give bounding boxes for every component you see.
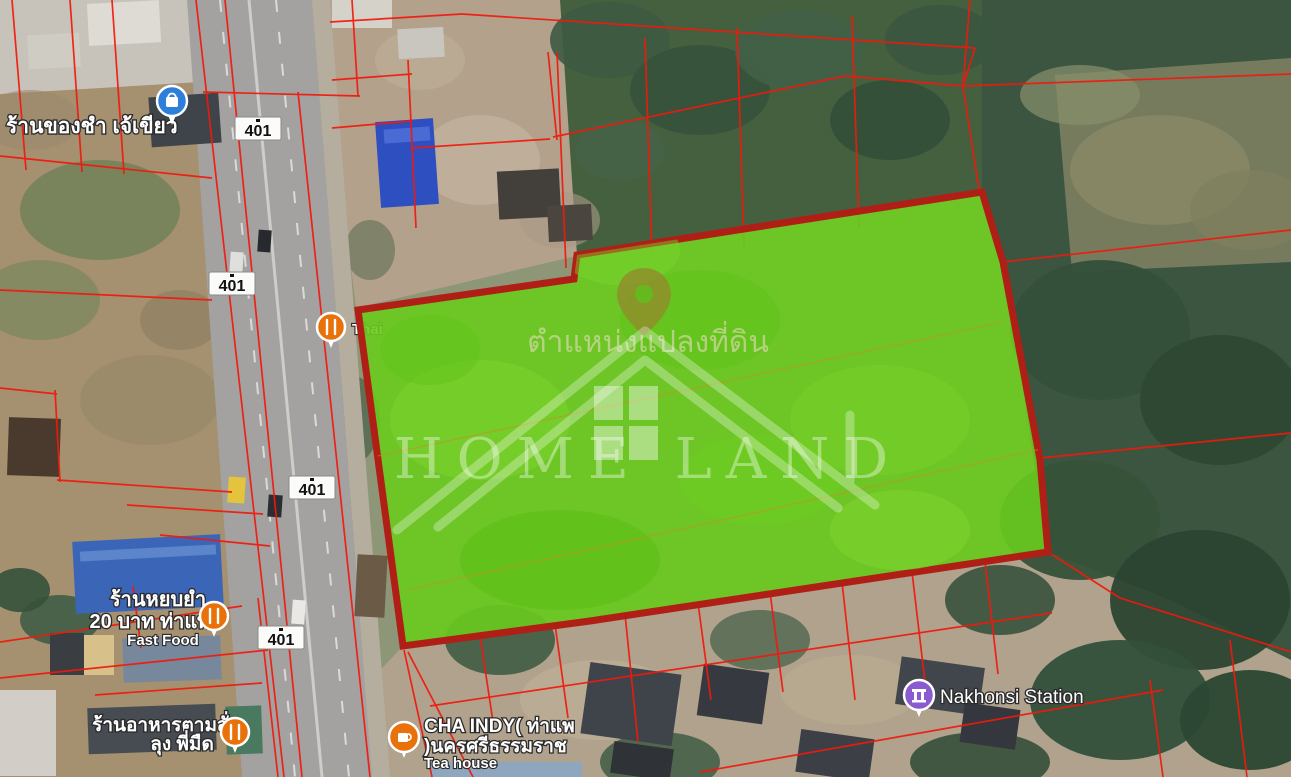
road-shield-401: 401 [289, 476, 335, 499]
station-label[interactable]: Nakhonsi Station [940, 687, 1084, 708]
svg-text:401: 401 [299, 482, 326, 499]
road-shield-401: 401 [235, 117, 281, 140]
fast-food-name-line2[interactable]: 20 บาท ท่าแพ [90, 611, 211, 633]
fast-food-name-line1[interactable]: ร้านหยบยำ [110, 588, 206, 611]
fast-food-category[interactable]: Fast Food [127, 632, 199, 649]
svg-text:401: 401 [268, 632, 295, 649]
road-shield-401: 401 [258, 626, 304, 649]
made-to-order-name-line2[interactable]: ลุง พี่มืด [150, 730, 214, 756]
watermark-thai-caption: ตำแหน่งแปลงที่ดิน [527, 321, 769, 359]
tea-house-category[interactable]: Tea house [424, 755, 497, 772]
tea-house-name-line2[interactable]: )นครศรีธรรมราช [424, 735, 567, 757]
road-shield-401: 401 [209, 272, 255, 295]
svg-text:401: 401 [245, 123, 272, 140]
satellite-map-canvas[interactable]: Thai ตำแหน่งแปลงที่ดิน [0, 0, 1291, 777]
tea-house-name-line1[interactable]: CHA INDY( ท่าแพ [424, 716, 575, 737]
made-to-order-name-line1[interactable]: ร้านอาหารตามสั่ง [92, 711, 238, 736]
svg-text:401: 401 [219, 278, 246, 295]
grocery-label[interactable]: ร้านของชำ เจ้เขียว [6, 114, 178, 138]
watermark-brand-text: HOME LAND [394, 427, 902, 492]
